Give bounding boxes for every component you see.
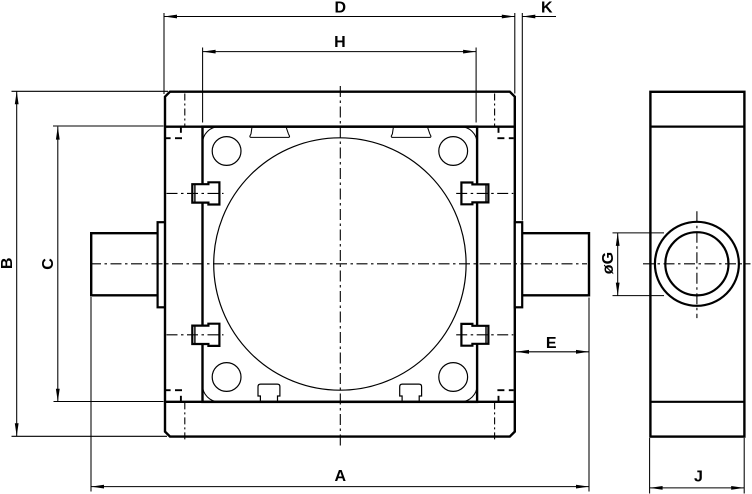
svg-text:K: K — [541, 0, 553, 16]
svg-text:D: D — [335, 0, 347, 16]
svg-text:B: B — [0, 258, 16, 270]
svg-text:J: J — [694, 469, 703, 486]
svg-text:E: E — [546, 335, 557, 352]
svg-text:C: C — [40, 258, 57, 270]
svg-text:H: H — [334, 34, 346, 51]
svg-text:A: A — [335, 468, 347, 485]
svg-text:øG: øG — [600, 252, 617, 274]
